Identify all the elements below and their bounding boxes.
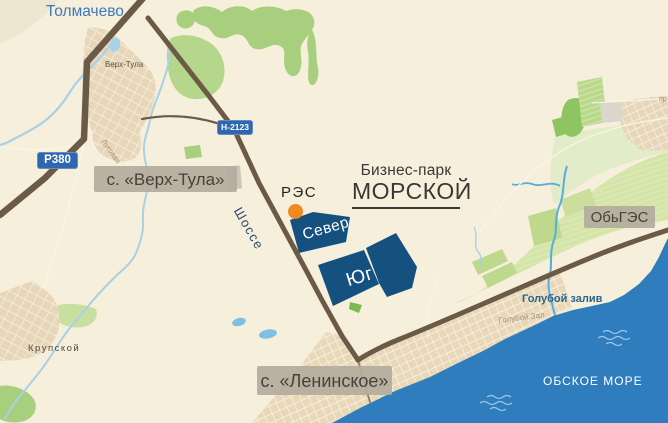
street-label-prospekt-partial: пр xyxy=(659,96,667,103)
map-base-layer xyxy=(0,0,668,423)
business-park-title-line2: МОРСКОЙ xyxy=(352,180,460,209)
area-label-leninskoe: с. «Ленинское» xyxy=(257,366,392,395)
res-station-label: РЭС xyxy=(281,185,317,200)
road-badge-r380: Р380 xyxy=(37,152,78,169)
business-park-title: Бизнес-парк МОРСКОЙ xyxy=(352,163,460,209)
sea-label-obskoe-more: ОБСКОЕ МОРЕ xyxy=(543,375,643,387)
bay-label-goluboy-zaliv: Голубой залив xyxy=(522,294,602,305)
village-label-krupskoy: Крупской xyxy=(28,344,80,354)
area-label-obges: ОбьГЭС xyxy=(584,206,655,228)
road-badge-n2123: Н-2123 xyxy=(217,120,253,135)
res-location-dot-icon xyxy=(288,204,303,219)
map-canvas: Толмачево Верх-Тула Луговая Р380 Н-2123 … xyxy=(0,0,668,423)
city-label-tolmachevo: Толмачево xyxy=(46,4,124,20)
business-park-title-line1: Бизнес-парк xyxy=(352,163,460,179)
village-label-verh-tula-small: Верх-Тула xyxy=(105,61,143,69)
building-block xyxy=(600,101,623,123)
area-label-verh-tula: с. «Верх-Тула» xyxy=(94,166,237,192)
